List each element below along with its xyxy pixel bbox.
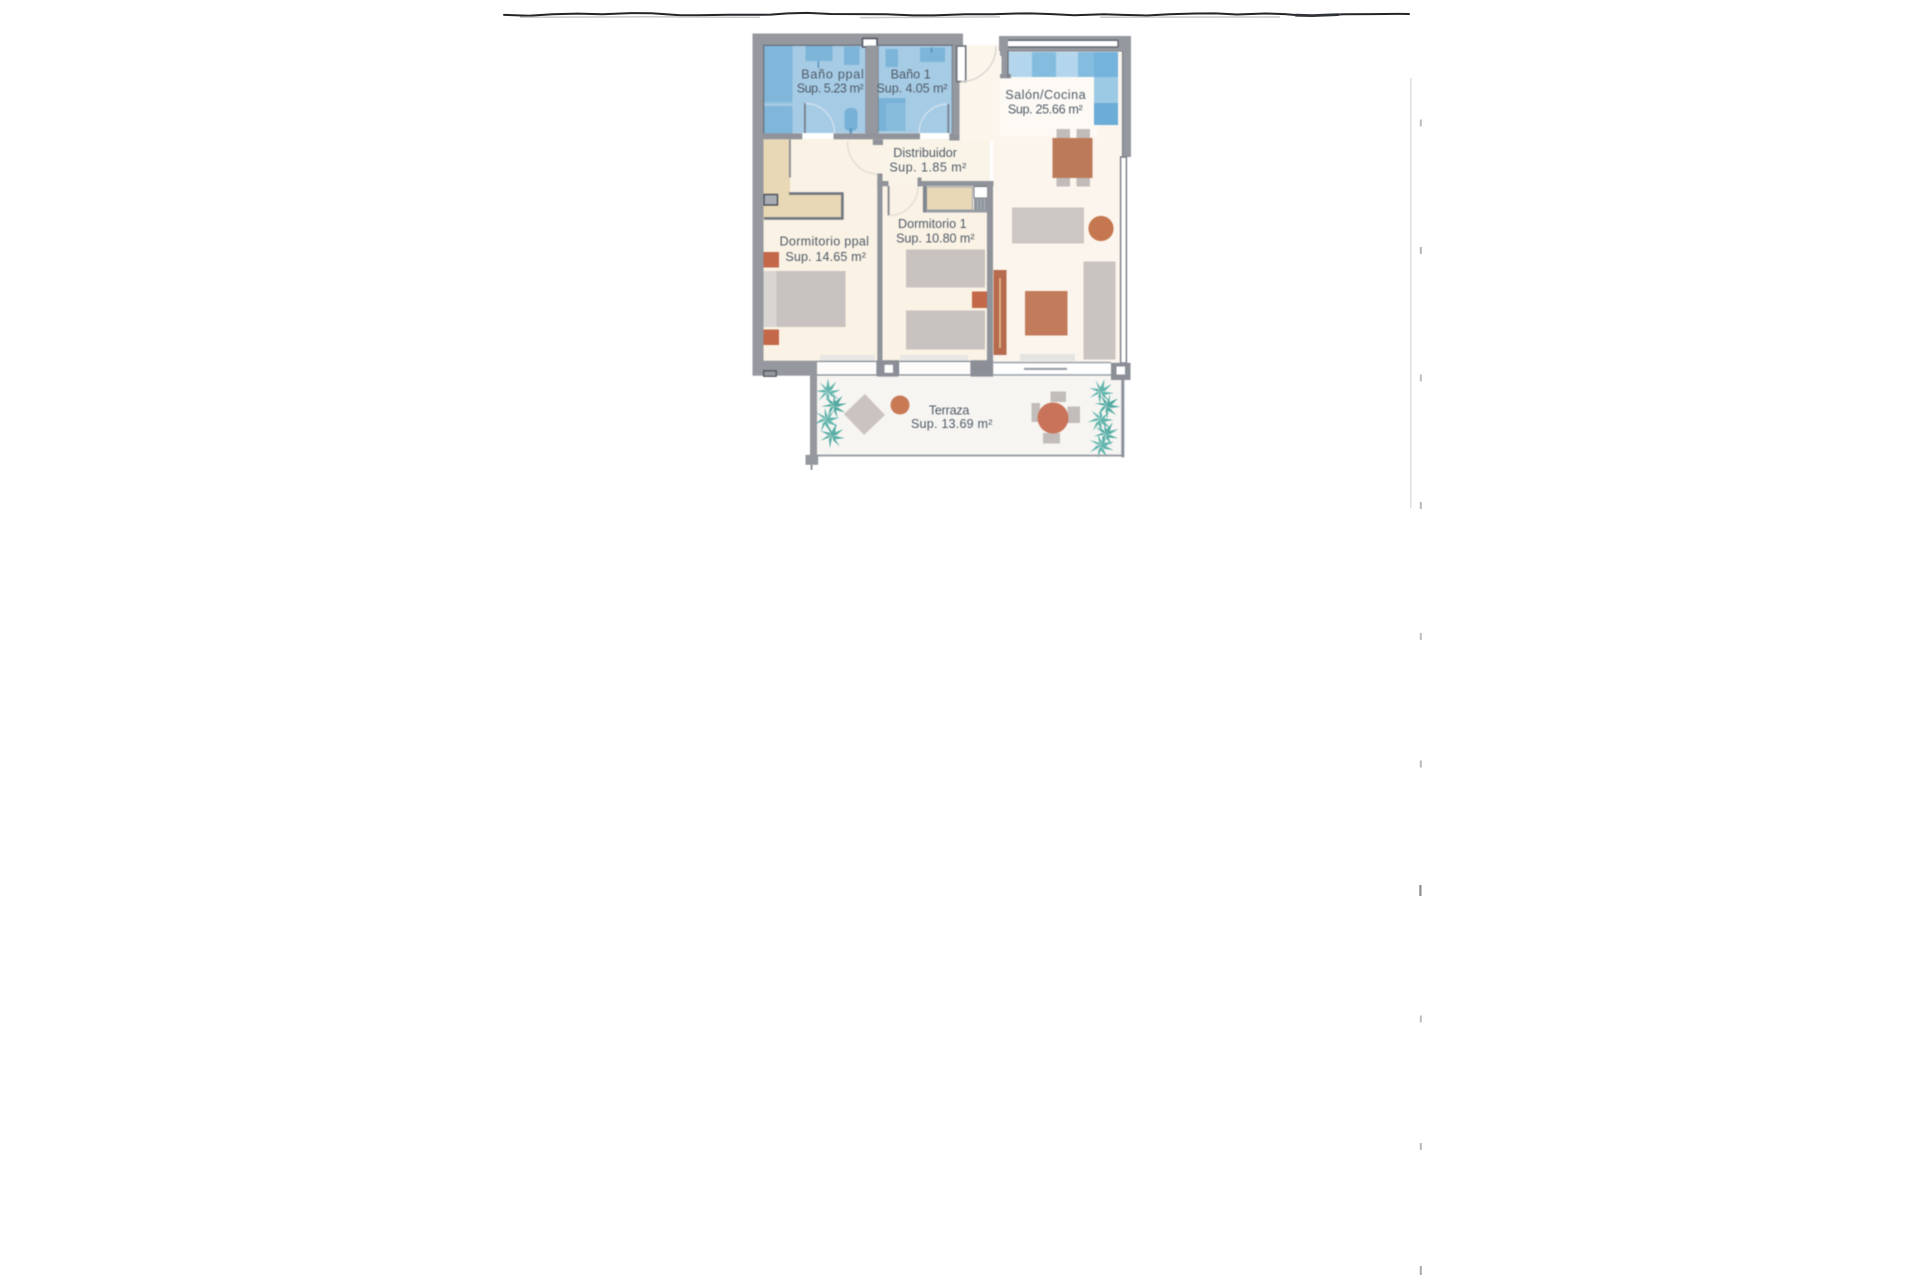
svg-text:Dormitorio 1: Dormitorio 1	[898, 217, 967, 231]
svg-text:Sup. 1.85 m²: Sup. 1.85 m²	[889, 161, 967, 175]
svg-text:Baño 1: Baño 1	[891, 67, 931, 81]
svg-text:Baño ppal: Baño ppal	[801, 68, 864, 82]
svg-text:Distribuidor: Distribuidor	[893, 146, 957, 160]
svg-text:Sup. 4.05 m²: Sup. 4.05 m²	[876, 82, 947, 96]
svg-text:Dormitorio ppal: Dormitorio ppal	[780, 235, 870, 249]
svg-text:Sup. 25.66 m²: Sup. 25.66 m²	[1008, 103, 1083, 117]
svg-text:Sup. 13.69 m²: Sup. 13.69 m²	[911, 417, 993, 431]
svg-text:Salón/Cocina: Salón/Cocina	[1005, 88, 1086, 102]
svg-text:Sup. 10.80 m²: Sup. 10.80 m²	[896, 231, 974, 245]
svg-text:Sup. 14.65 m²: Sup. 14.65 m²	[785, 250, 866, 264]
svg-text:Terraza: Terraza	[929, 404, 969, 418]
svg-text:Sup. 5.23 m²: Sup. 5.23 m²	[797, 82, 864, 96]
